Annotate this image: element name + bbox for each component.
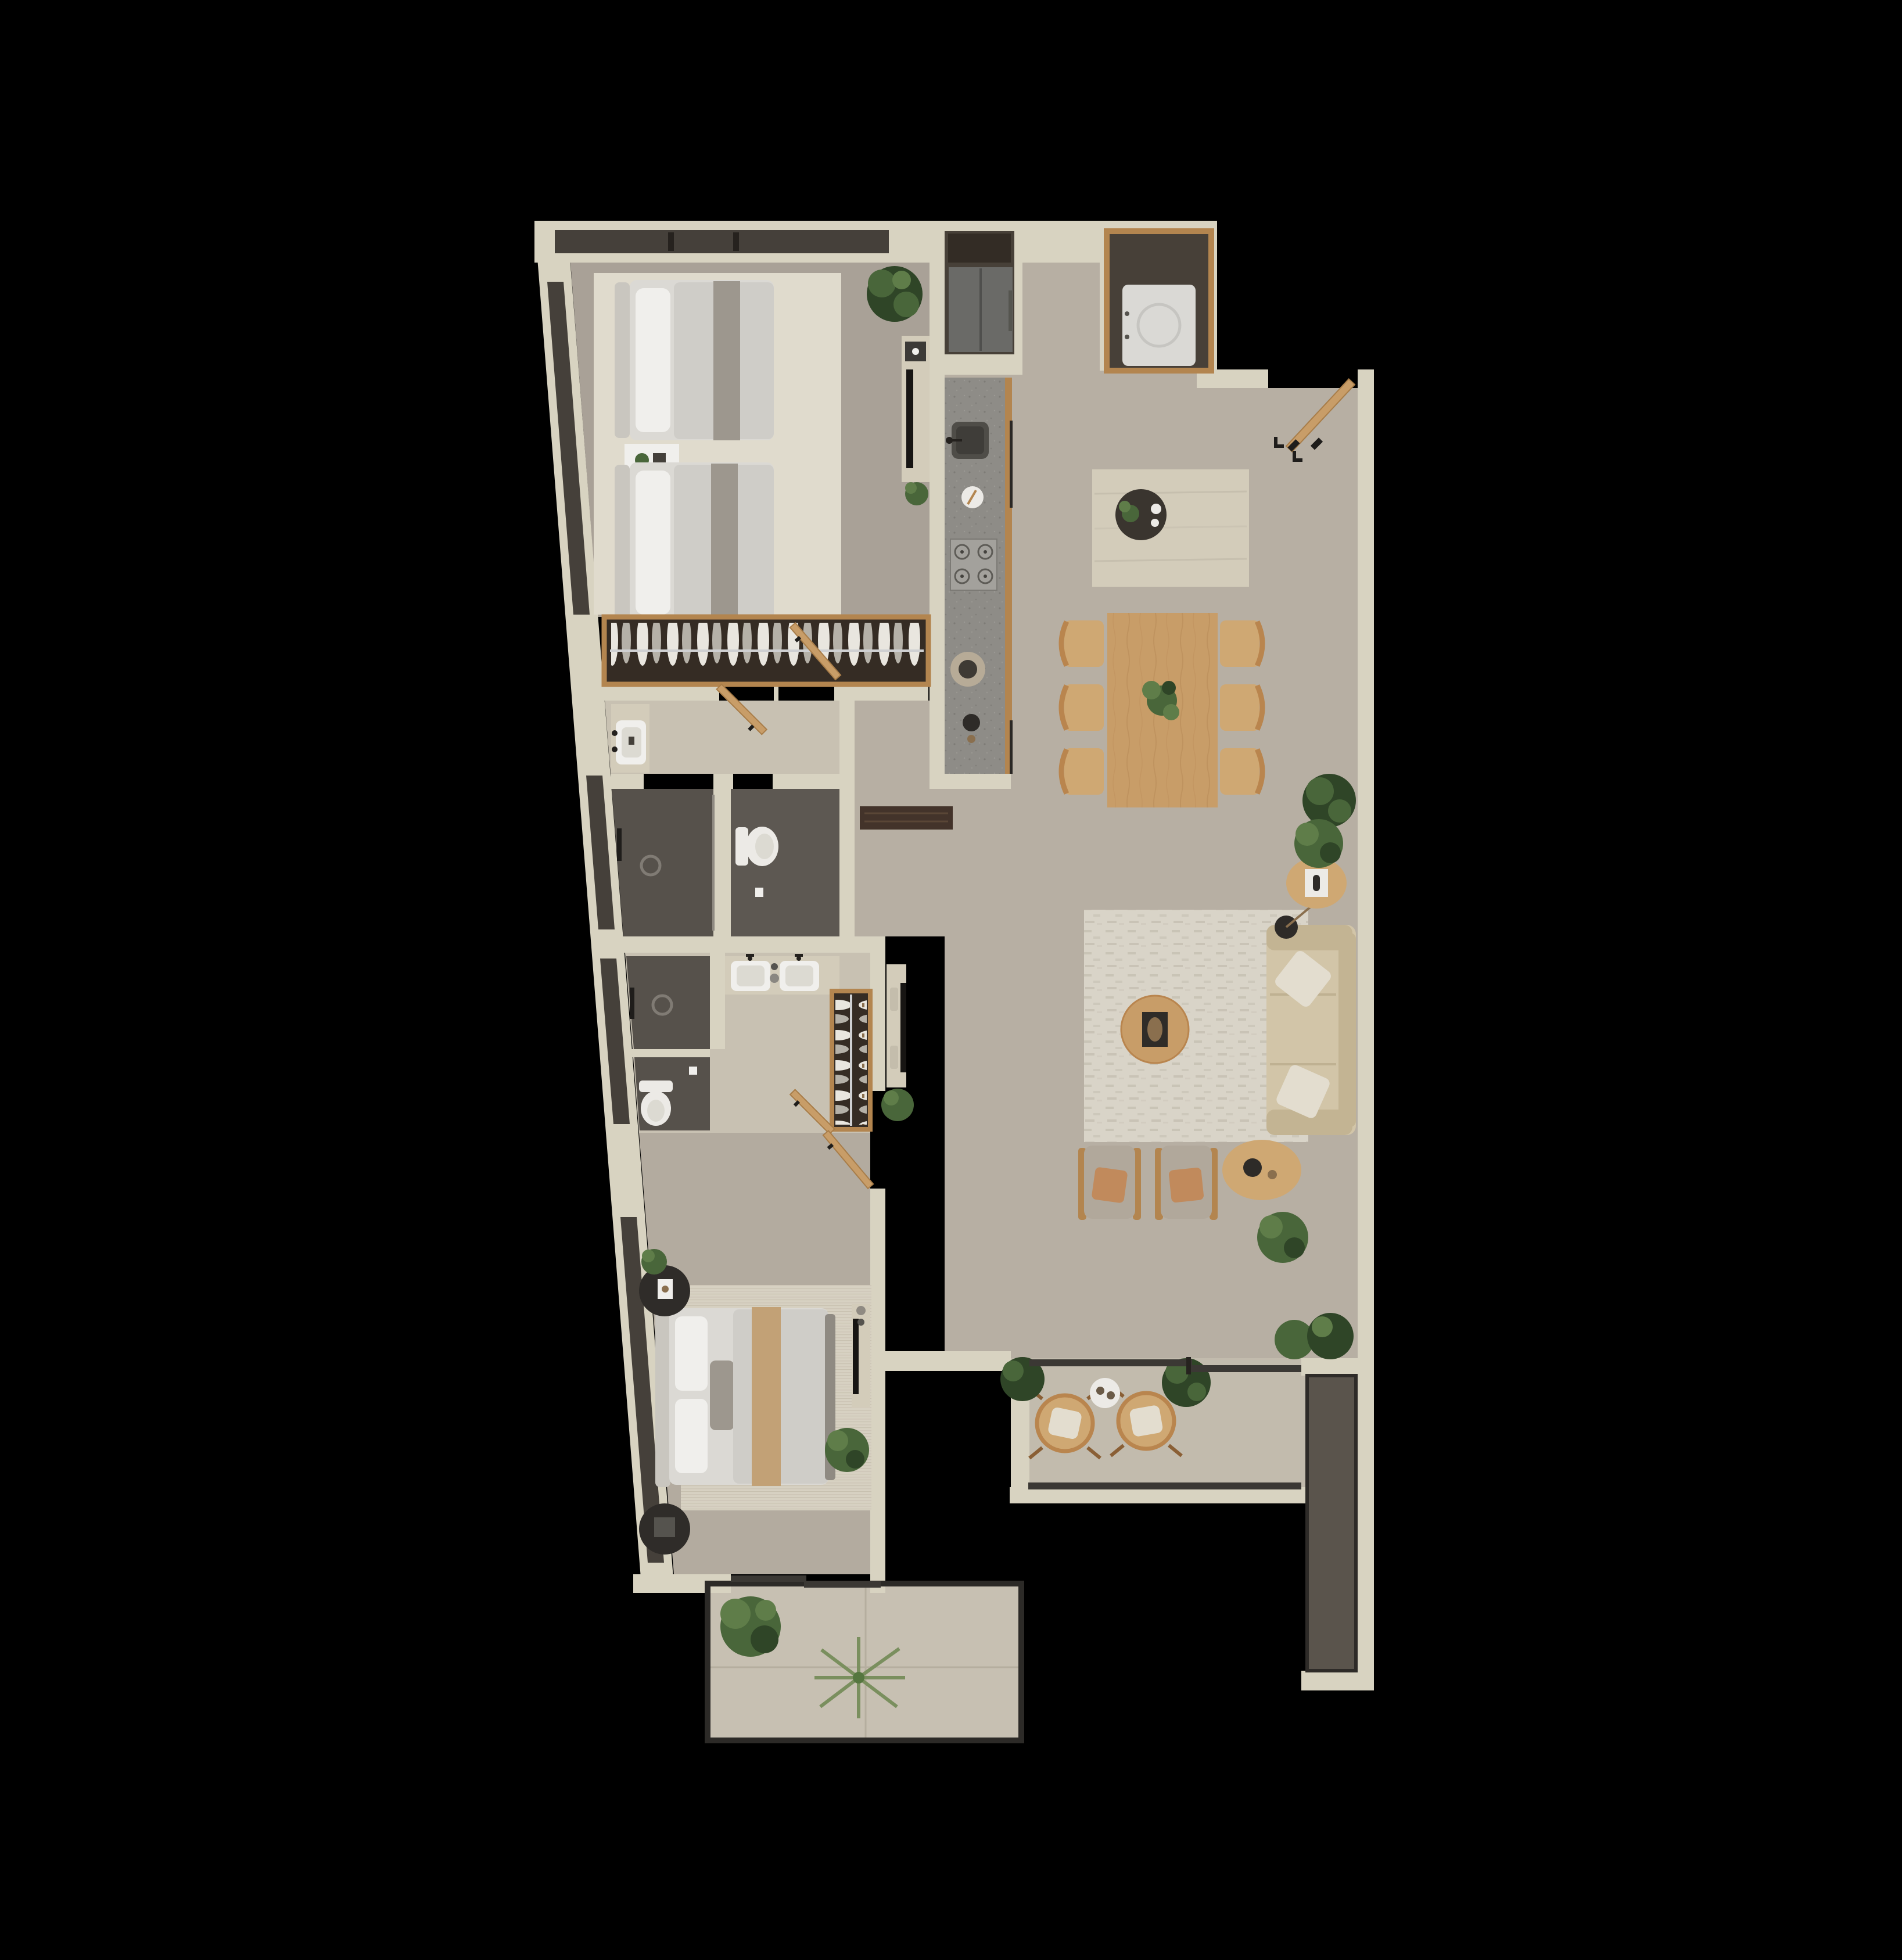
balcony-side-table [1090,1378,1120,1408]
balcony-railing [1028,1482,1301,1489]
wall-suite-north [623,936,885,953]
armchair [1078,1146,1141,1220]
dining-chairs-right [1220,620,1262,795]
soap-dispenser [771,963,778,970]
faucet [612,746,618,752]
double-vanity [725,954,839,995]
window-top [555,230,889,253]
armchair [1155,1146,1218,1220]
tv-screen [906,369,913,468]
tv-screen [853,1319,859,1394]
dining-chair [1061,620,1104,667]
wall-master-bath-divider [710,953,725,1049]
armchair-pillow [1168,1167,1204,1203]
sofa [1266,925,1356,1135]
console-plant [905,482,928,505]
dining-chair [1061,684,1104,731]
planter-strip [1307,1376,1356,1671]
cutting-board [950,652,985,687]
potted-plant [1257,1212,1308,1263]
wall-fridge-niche-east [1014,231,1022,354]
wall-balcony-stub [885,1351,1011,1371]
master-bedroom [639,1249,871,1555]
pillow [675,1316,708,1391]
floor-plan [0,0,1902,1960]
washer-knob [1125,335,1129,339]
toilet-paper [689,1067,697,1075]
pillow [636,471,670,615]
soap-dish [770,974,779,983]
potted-plant [720,1596,781,1657]
potted-plant [1302,774,1356,827]
toilet-paper [755,888,763,897]
faucet [612,730,618,736]
nightstand-plant [641,1249,667,1275]
nightstand-frame [654,1517,675,1537]
round-lounge-chair [1029,1388,1100,1458]
sofa-backrest [1338,933,1356,1127]
round-nightstand [639,1265,690,1316]
wall-kitchen-stub [930,774,1011,789]
coffee-table [1121,996,1189,1063]
vase [1243,1158,1262,1177]
tray-decor [1147,1017,1162,1042]
kitchen-island [1092,469,1249,587]
tv-screen [900,983,906,1072]
utility-closet [1107,231,1211,371]
potted-plant [867,266,923,322]
wall-entry-north [1217,369,1268,388]
wall-balcony-bottom [1010,1487,1307,1503]
wall-bath1-mid-a [611,774,644,789]
console-bench [860,806,953,830]
cabinet-handle [1010,421,1013,508]
balcony-slider-rail [1190,1365,1301,1372]
wall-planter-bottom [1301,1671,1374,1690]
double-bed [655,1306,835,1487]
washer-dryer [1122,285,1196,366]
vanity-sink [611,704,649,773]
shower-handle [630,988,634,1019]
armchair-pillow [1091,1166,1128,1203]
potted-plant [1294,819,1343,868]
patio-slider-rail [804,1581,881,1588]
upper-cabinet [948,234,1011,263]
patio-slider-rail [731,1575,806,1582]
wall-bath1-divider [713,789,731,936]
wall-master-shower-toilet [630,1049,710,1057]
pillow [675,1399,708,1473]
dining-area [1061,613,1262,807]
potted-plant [825,1428,869,1472]
shower-handle [617,828,622,861]
dining-chair [1061,748,1104,795]
wall-planter-top [1301,1358,1358,1376]
wardrobe-with-clothes [604,617,928,684]
floor-master-shower [626,956,710,1049]
dining-chair [1220,684,1262,731]
console-plant [881,1089,914,1121]
cabinet-handle [1010,720,1013,774]
bed-runner [752,1307,781,1486]
living-tv-console [887,964,906,1087]
wall-fridge-niche-bottom [945,354,1022,375]
twin-bed [615,462,774,623]
entry-door-jamb [1261,369,1268,388]
bed-throw [711,464,738,623]
wall-suite-east-lower [870,1189,885,1593]
floor-plan-stage [0,0,1902,1960]
master-tv-console [852,1304,870,1408]
dining-chair [1220,620,1262,667]
gas-cooktop [950,539,997,590]
wall-bath1-east [839,701,855,936]
cup [1151,504,1161,514]
bed-throw [713,281,740,440]
twin-bed [615,280,774,440]
bedroom-tv-console [902,336,930,482]
floor-bath1-shower [612,789,713,936]
window-mullion [733,232,739,251]
wall-east [1358,369,1374,1690]
fridge-handle [1009,290,1012,331]
dining-chairs-left [1061,620,1104,795]
accent-pillow [710,1360,734,1430]
balcony-slider-rail [1029,1359,1192,1366]
window-mullion [668,232,674,251]
pillow [636,288,670,432]
speaker [856,1306,866,1315]
walk-in-closet [832,991,870,1129]
cup [1096,1387,1104,1395]
cup [1151,519,1159,527]
slider-handle [1186,1357,1191,1374]
wall-bath1-mid-b [713,774,733,789]
tray-plant-leaf [1119,501,1131,512]
side-table [1222,1140,1301,1200]
wall-kitchen-west [930,263,945,774]
cup [1107,1391,1115,1399]
dining-chair [1220,748,1262,795]
chair-cushion [1129,1405,1164,1437]
washer-knob [1125,311,1129,316]
kitchen-sink [946,422,989,459]
wall-bath1-mid-c [773,774,839,789]
round-nightstand [639,1503,690,1555]
